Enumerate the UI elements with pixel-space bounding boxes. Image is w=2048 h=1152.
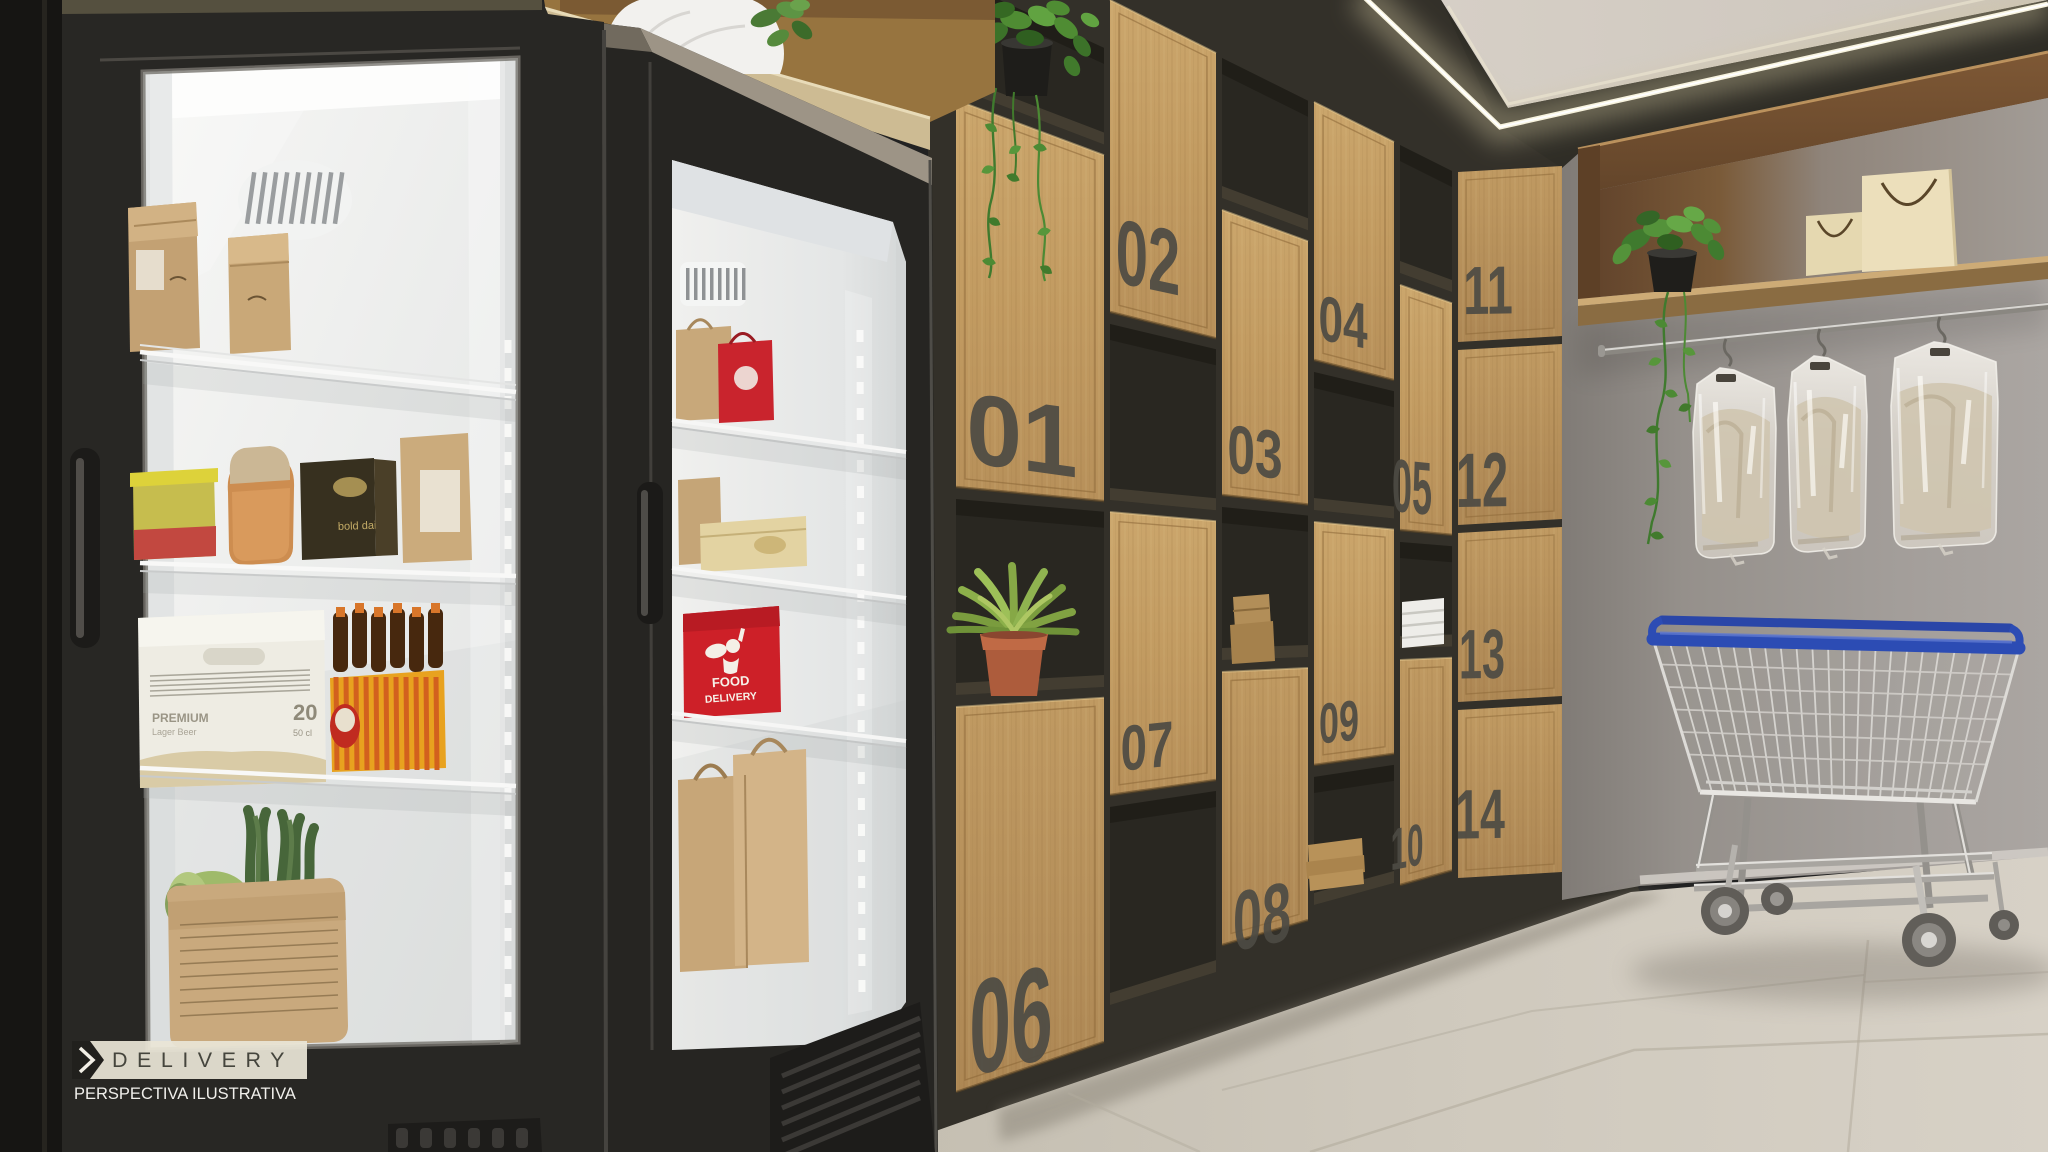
svg-text:06: 06 xyxy=(969,937,1052,1106)
svg-text:09: 09 xyxy=(1319,689,1359,757)
svg-text:02: 02 xyxy=(1116,200,1180,316)
svg-text:01: 01 xyxy=(966,372,1077,499)
svg-text:FOOD: FOOD xyxy=(711,673,750,691)
svg-text:20: 20 xyxy=(293,700,317,725)
svg-text:50 cl: 50 cl xyxy=(293,728,312,738)
svg-text:13: 13 xyxy=(1459,616,1505,695)
svg-text:PREMIUM: PREMIUM xyxy=(152,711,209,725)
svg-text:11: 11 xyxy=(1463,253,1513,330)
svg-text:08: 08 xyxy=(1233,863,1291,970)
svg-text:05: 05 xyxy=(1392,445,1432,532)
svg-text:12: 12 xyxy=(1456,436,1508,524)
svg-text:10: 10 xyxy=(1391,811,1424,883)
svg-text:Lager Beer: Lager Beer xyxy=(152,727,197,737)
svg-text:DELIVERY: DELIVERY xyxy=(112,1048,294,1072)
svg-text:03: 03 xyxy=(1227,410,1282,494)
svg-text:07: 07 xyxy=(1121,707,1174,784)
svg-text:PERSPECTIVA ILUSTRATIVA: PERSPECTIVA ILUSTRATIVA xyxy=(74,1085,296,1103)
svg-text:14: 14 xyxy=(1455,776,1505,854)
svg-text:04: 04 xyxy=(1318,281,1367,362)
